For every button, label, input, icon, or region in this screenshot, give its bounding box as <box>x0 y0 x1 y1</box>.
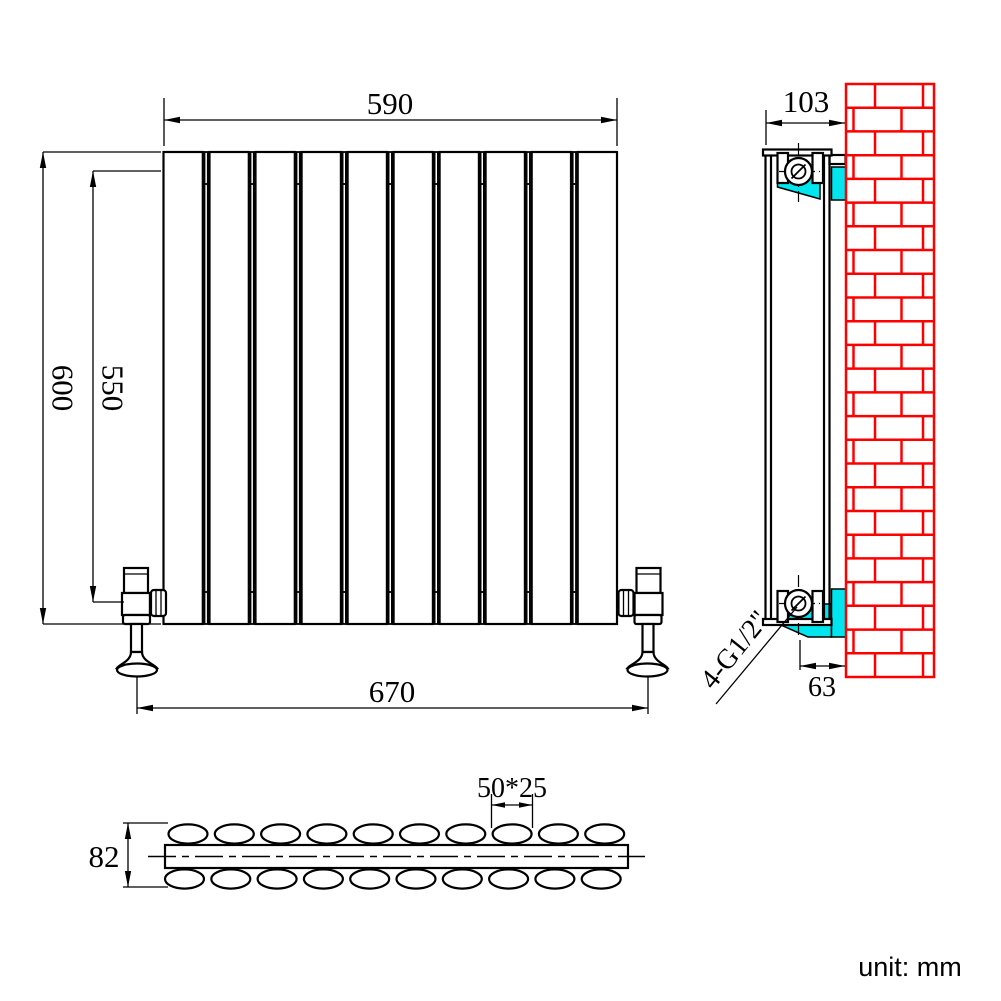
arrowhead <box>800 663 816 669</box>
radiator-panel <box>302 152 341 624</box>
arrowhead <box>829 120 845 126</box>
valve-pipe <box>131 624 142 652</box>
dim-590: 590 <box>164 86 617 146</box>
radiator-panel <box>578 152 617 624</box>
radiator-panel <box>532 152 571 624</box>
tube-oval-front <box>215 824 254 843</box>
wall-bracket-bottom-block <box>832 589 847 637</box>
section-view: 82 50*25 <box>89 773 646 889</box>
brick-wall <box>846 84 934 677</box>
tube-oval-front <box>169 824 208 843</box>
tube-oval-back <box>397 869 436 888</box>
tube-oval-back <box>535 869 574 888</box>
tube-oval-front <box>585 824 624 843</box>
radiator-panel <box>210 152 249 624</box>
dim-label-depth: 103 <box>783 84 830 119</box>
tube-oval-front <box>493 824 532 843</box>
radiator-valve-right <box>619 568 668 677</box>
radiator-panel <box>440 152 479 624</box>
valve-lower-nut <box>123 615 150 624</box>
tube-oval-front <box>400 824 439 843</box>
tube-oval-back <box>350 869 389 888</box>
dim-82: 82 <box>89 823 169 887</box>
brick-wall-outline <box>846 84 934 677</box>
radiator-panels <box>164 152 618 624</box>
arrowhead <box>601 117 617 123</box>
tube-oval-front <box>307 824 346 843</box>
dim-103: 103 <box>766 84 845 145</box>
panel-gap <box>205 152 208 624</box>
arrowhead <box>766 120 782 126</box>
tube-oval-back <box>443 869 482 888</box>
valve-union-nut <box>151 590 166 616</box>
panel-gap <box>527 152 530 624</box>
tube-oval-front <box>446 824 485 843</box>
panel-gap <box>435 152 438 624</box>
dim-label-tube-size: 50*25 <box>477 773 547 804</box>
panel-gap <box>481 152 484 624</box>
dim-label-overall-height: 600 <box>46 365 81 412</box>
radiator-panel <box>256 152 295 624</box>
tube-oval-back <box>165 869 204 888</box>
technical-drawing: 590 600 550 670 <box>0 0 1001 1001</box>
panel-gap <box>343 152 346 624</box>
arrowhead <box>125 871 131 887</box>
arrowhead <box>125 823 131 839</box>
arrowhead <box>40 152 46 168</box>
tube-oval-back <box>582 869 621 888</box>
drawing-canvas: 590 600 550 670 <box>0 0 1001 1001</box>
valve-body <box>122 593 150 615</box>
tube-oval-front <box>261 824 300 843</box>
unit-note: unit: mm <box>858 952 962 982</box>
arrowhead <box>90 586 96 602</box>
panel-gap <box>389 152 392 624</box>
dim-label-bottom-width: 670 <box>369 674 416 709</box>
radiator-panel <box>394 152 433 624</box>
dim-label-connection-height: 550 <box>96 365 131 412</box>
side-view: 103 63 4-G1/2" <box>694 84 934 704</box>
side-tube <box>813 591 824 622</box>
wall-bracket-top-block <box>832 167 847 200</box>
tube-oval-back <box>258 869 297 888</box>
panel-gap <box>297 152 300 624</box>
arrowhead <box>90 171 96 187</box>
front-view: 590 600 550 670 <box>40 86 668 714</box>
radiator-valve-left <box>117 568 166 677</box>
dim-550: 550 <box>90 171 161 602</box>
dim-label-bracket-offset: 63 <box>808 672 836 703</box>
dim-63: 63 <box>800 640 845 703</box>
radiator-panel <box>486 152 525 624</box>
tube-oval-front <box>354 824 393 843</box>
dim-50x25: 50*25 <box>477 773 547 828</box>
arrowhead <box>164 117 180 123</box>
side-tube <box>813 153 824 183</box>
tube-oval-back <box>304 869 343 888</box>
panel-gap <box>573 152 576 624</box>
arrowhead <box>829 663 845 669</box>
radiator-panel <box>348 152 387 624</box>
tube-oval-back <box>211 869 250 888</box>
dim-label-top-width: 590 <box>367 86 414 121</box>
tube-oval-back <box>489 869 528 888</box>
pipe-foot <box>117 664 157 677</box>
arrowhead <box>632 705 648 711</box>
valve-head <box>124 568 148 593</box>
radiator-panel <box>164 152 203 624</box>
dim-label-section-depth: 82 <box>89 839 120 874</box>
arrowhead <box>40 608 46 624</box>
dim-670: 670 <box>137 674 648 714</box>
arrowhead <box>137 705 153 711</box>
panel-gap <box>251 152 254 624</box>
tube-oval-front <box>539 824 578 843</box>
